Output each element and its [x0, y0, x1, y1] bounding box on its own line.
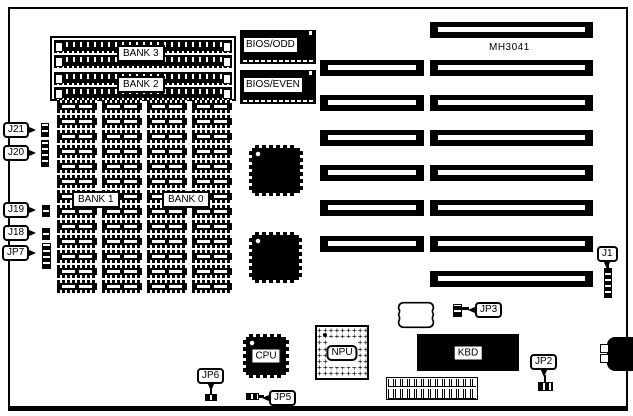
power-connector — [386, 377, 478, 400]
dip-memory-chip — [102, 250, 142, 263]
expansion-slot-short-segment — [320, 165, 424, 181]
bios-odd-label: BIOS/ODD — [244, 38, 297, 52]
dip-memory-chip — [147, 235, 187, 248]
bios-odd-chip: BIOS/ODD — [240, 30, 316, 64]
expansion-slot-long-segment — [430, 130, 593, 146]
jumper-j18 — [42, 228, 50, 240]
keyboard-controller-chip: KBD — [417, 334, 519, 371]
callout-jp5: JP5 — [269, 390, 296, 406]
jumper-j20 — [41, 140, 49, 167]
dip-memory-chip — [57, 145, 97, 158]
npu-pin1-dot — [323, 333, 327, 337]
dip-memory-chip — [192, 265, 232, 278]
dip-memory-chip — [57, 220, 97, 233]
dip-memory-chip — [57, 250, 97, 263]
jumper-jp2 — [538, 382, 553, 391]
expansion-slot-long-segment — [430, 271, 593, 287]
dip-memory-chip — [57, 175, 97, 188]
dip-memory-chip — [102, 115, 142, 128]
power-connector-pins-top — [388, 379, 476, 387]
callout-jp3: JP3 — [475, 302, 502, 318]
cpu-chip: CPU — [243, 334, 289, 378]
dip-memory-chip — [102, 265, 142, 278]
dip-memory-chip — [102, 280, 142, 293]
expansion-slot-long-segment — [430, 60, 593, 76]
jumper-j19 — [42, 205, 50, 217]
dip-memory-chip — [102, 175, 142, 188]
dip-memory-chip — [147, 250, 187, 263]
callout-jp6: JP6 — [197, 368, 224, 384]
bank2-label: BANK 2 — [117, 76, 165, 93]
dip-memory-chip — [57, 160, 97, 173]
expansion-slot-long-segment — [430, 165, 593, 181]
expansion-slot-long-segment — [430, 95, 593, 111]
jumper-j21 — [41, 123, 49, 137]
dip-memory-chip — [147, 115, 187, 128]
dip-memory-chip — [102, 160, 142, 173]
bank3-label: BANK 3 — [117, 45, 165, 62]
dip-memory-chip — [147, 220, 187, 233]
callout-j21: J21 — [3, 122, 29, 138]
dip-memory-chip — [147, 280, 187, 293]
dip-memory-chip — [147, 160, 187, 173]
dip-memory-chip — [57, 265, 97, 278]
dip-memory-chip — [192, 175, 232, 188]
dip-memory-chip — [147, 145, 187, 158]
dip-memory-chip — [102, 100, 142, 113]
dip-memory-chip — [192, 130, 232, 143]
dip-memory-chip — [192, 160, 232, 173]
dip-memory-chip — [57, 130, 97, 143]
bios-even-chip: BIOS/EVEN — [240, 70, 316, 104]
callout-j18: J18 — [3, 225, 29, 241]
dip-memory-chip — [57, 100, 97, 113]
din-connector-pin — [600, 354, 609, 363]
bios-even-label: BIOS/EVEN — [244, 78, 302, 92]
jumper-jp6 — [205, 394, 217, 401]
npu-label: NPU — [326, 345, 357, 361]
dip-memory-chip — [147, 100, 187, 113]
dip-memory-chip — [102, 220, 142, 233]
jumper-jp3 — [453, 304, 462, 317]
expansion-slot-short-segment — [320, 60, 424, 76]
dip-memory-chip — [192, 280, 232, 293]
jumper-j1 — [604, 268, 612, 298]
dip-memory-chip — [147, 265, 187, 278]
dip-memory-chip — [147, 130, 187, 143]
motherboard-diagram: BANK 3 BANK 2 BANK 1 BANK 0 BIOS/ODD BIO… — [0, 0, 633, 416]
cpu-label: CPU — [251, 349, 280, 364]
crystal-oscillator — [397, 301, 435, 334]
expansion-slot-short-segment — [320, 95, 424, 111]
expansion-slot-short-segment — [320, 200, 424, 216]
qfp-chip-lower — [249, 232, 302, 283]
jumper-jp7 — [42, 243, 51, 269]
crystal-outline — [397, 301, 435, 329]
dip-memory-chip — [102, 130, 142, 143]
keyboard-din-connector — [607, 337, 633, 371]
dip-memory-chip — [102, 145, 142, 158]
callout-jp7: JP7 — [2, 245, 29, 261]
callout-j19: J19 — [3, 202, 29, 218]
expansion-slot-long-segment — [430, 22, 593, 38]
dip-memory-chip — [192, 235, 232, 248]
dip-memory-chip — [192, 220, 232, 233]
dip-memory-chip — [57, 280, 97, 293]
dip-memory-chip — [192, 115, 232, 128]
dip-memory-chip — [147, 175, 187, 188]
din-connector-pin — [600, 344, 609, 353]
dip-memory-chip — [192, 250, 232, 263]
dip-memory-chip — [102, 235, 142, 248]
qfp-chip-body — [249, 232, 302, 283]
expansion-slot-short-segment — [320, 130, 424, 146]
dip-memory-chip — [192, 100, 232, 113]
callout-jp2: JP2 — [530, 354, 557, 370]
expansion-slot-long-segment — [430, 236, 593, 252]
kbd-label: KBD — [455, 346, 482, 359]
dip-memory-chip — [57, 235, 97, 248]
power-connector-pins-bottom — [388, 389, 476, 399]
expansion-slot-long-segment — [430, 200, 593, 216]
callout-j20: J20 — [3, 145, 29, 161]
qfp-chip-body — [249, 145, 303, 196]
callout-j1: J1 — [597, 246, 618, 262]
npu-socket: +++++++++ +++++++++ +++++++++ +++++++++ … — [315, 325, 369, 380]
bank0-label: BANK 0 — [162, 191, 210, 208]
board-model-label: MH3041 — [489, 42, 530, 53]
npu-center: NPU — [328, 338, 356, 367]
dip-memory-chip — [57, 115, 97, 128]
dip-memory-chip — [192, 145, 232, 158]
expansion-slot-short-segment — [320, 236, 424, 252]
qfp-chip-upper — [249, 145, 303, 196]
bank1-label: BANK 1 — [72, 191, 120, 208]
